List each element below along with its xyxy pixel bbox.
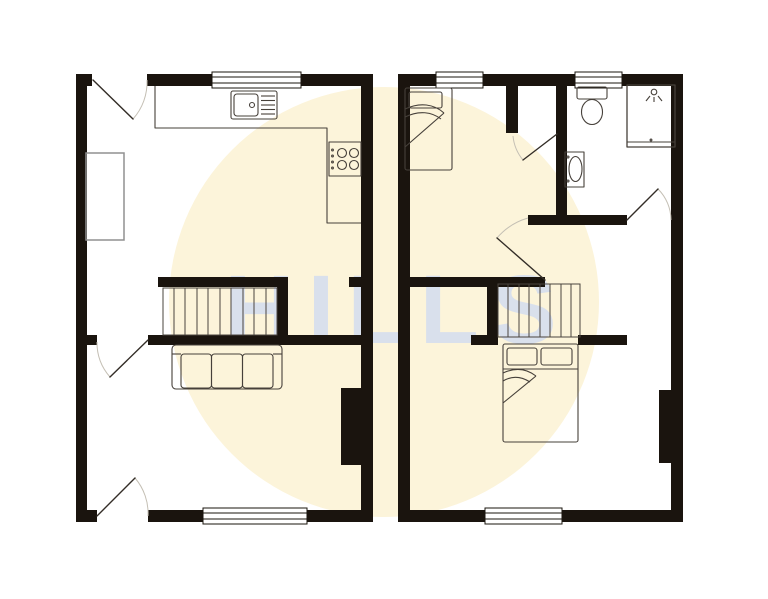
wall-segment-party xyxy=(398,74,410,522)
wall-segment-right xyxy=(671,74,683,522)
door-leaf xyxy=(97,478,135,516)
window xyxy=(575,72,622,88)
alcove-unit-icon xyxy=(86,153,124,240)
door-arc xyxy=(135,478,148,516)
kitchen-sink-icon xyxy=(231,91,277,119)
floorplan-drawing: HILLS xyxy=(0,0,768,599)
wall-segment xyxy=(398,510,485,522)
wall-stub xyxy=(349,277,361,287)
wall-stair-bottom xyxy=(578,335,627,345)
window xyxy=(485,508,562,524)
cistern-icon xyxy=(577,87,607,99)
shower-drain-dot xyxy=(650,139,652,141)
wash-basin-icon xyxy=(565,152,584,187)
wall-stair-side xyxy=(487,277,498,345)
wall-segment-party xyxy=(361,74,373,522)
wall-lounge-divider xyxy=(148,335,362,345)
window xyxy=(436,72,483,88)
wall-stair-side xyxy=(277,277,288,345)
door-leaf xyxy=(110,340,148,377)
wall-segment xyxy=(148,510,203,522)
window xyxy=(212,72,301,88)
door-arc xyxy=(658,189,671,220)
wall-segment xyxy=(307,510,373,522)
wall-segment xyxy=(483,74,575,86)
wall-segment xyxy=(76,510,97,522)
chimney-breast xyxy=(341,388,362,465)
wall-stair-top xyxy=(158,277,288,287)
shower-head-icon xyxy=(651,89,657,95)
chimney-breast xyxy=(659,390,672,463)
wall-segment xyxy=(147,74,212,86)
floorplan-canvas: HILLS xyxy=(0,0,768,599)
wall-stair-bottom xyxy=(471,335,498,345)
wall-stub xyxy=(87,335,97,345)
wall-segment-left xyxy=(76,74,87,522)
wall-landing xyxy=(410,277,545,287)
door-arc xyxy=(97,342,110,377)
wall-bathroom-bottom xyxy=(528,215,627,225)
door-leaf xyxy=(93,80,133,119)
wall-bedroom-divider xyxy=(506,86,518,133)
door-arc xyxy=(133,80,147,119)
door-leaf xyxy=(627,189,658,220)
window xyxy=(203,508,307,524)
shower-cubicle-icon xyxy=(627,85,675,147)
toilet-icon xyxy=(577,87,607,125)
wall-segment xyxy=(562,510,683,522)
